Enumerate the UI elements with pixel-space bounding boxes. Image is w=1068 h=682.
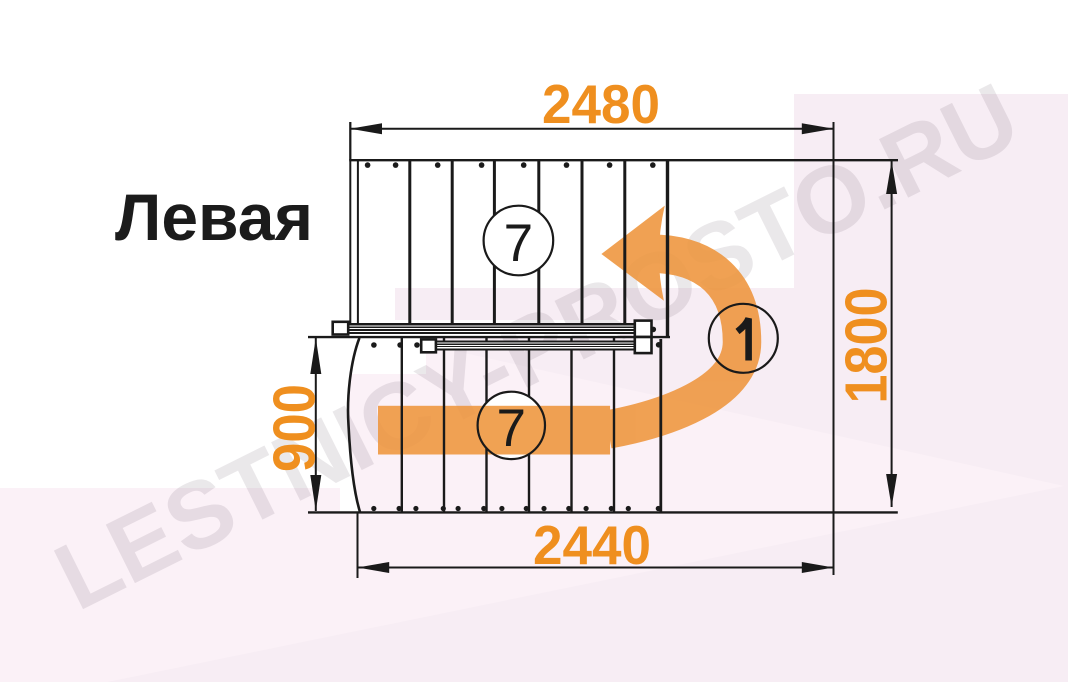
svg-text:900: 900	[262, 384, 328, 472]
svg-text:7: 7	[504, 214, 533, 273]
svg-text:2440: 2440	[533, 514, 651, 576]
svg-text:Левая: Левая	[115, 180, 313, 254]
svg-text:7: 7	[497, 399, 526, 458]
svg-text:2480: 2480	[542, 73, 660, 135]
svg-text:1800: 1800	[834, 288, 900, 404]
